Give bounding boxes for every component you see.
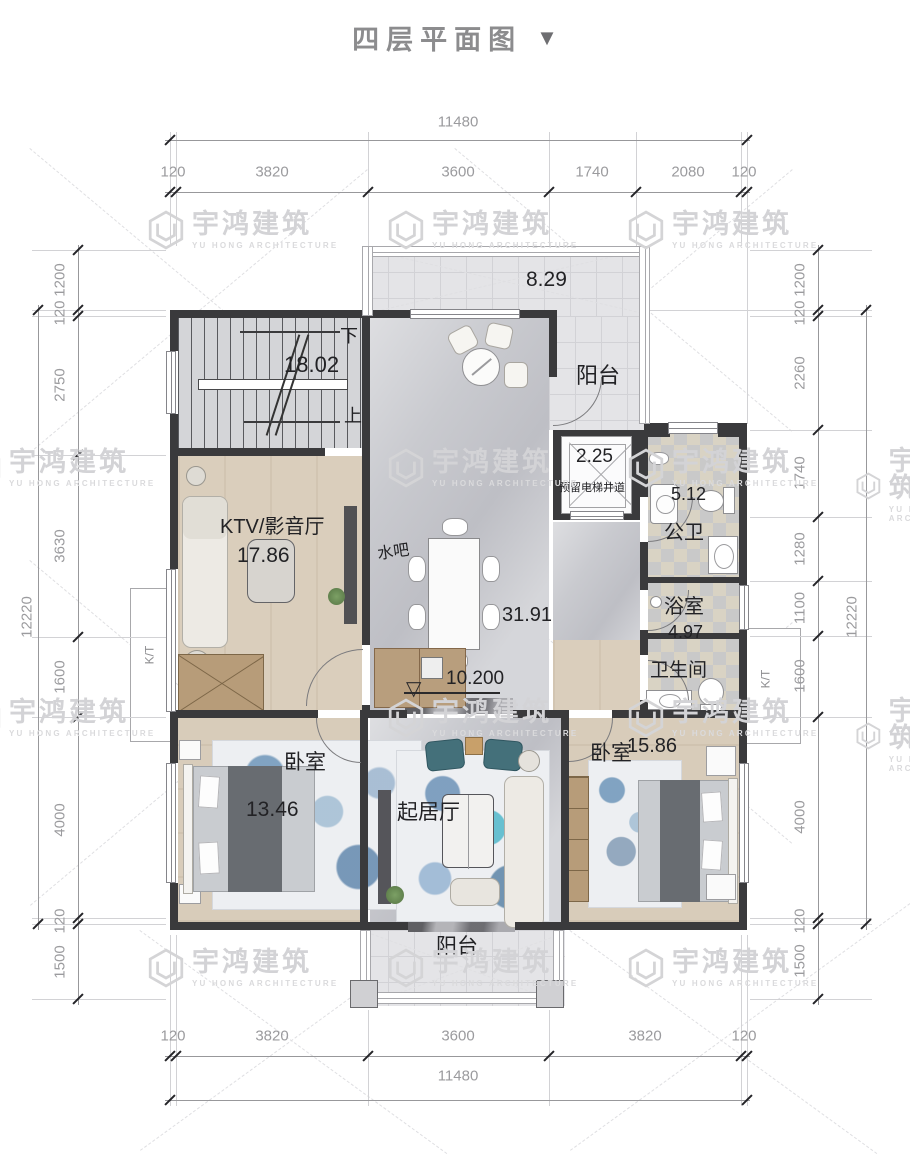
wall (170, 310, 178, 351)
wall (648, 577, 739, 583)
bay-window-left-label: K/T (142, 646, 156, 665)
elevation-value: 10.200 (446, 668, 504, 690)
elevator-door (570, 511, 624, 520)
extension-line (32, 637, 166, 638)
window (166, 569, 176, 712)
elevation-underline (404, 692, 500, 694)
nightstand (706, 746, 736, 776)
dimension-value: 1600 (792, 659, 809, 692)
bed-headboard (183, 764, 193, 894)
window (166, 351, 176, 414)
yuhong-logo-icon (856, 716, 881, 756)
dimension-value: 120 (160, 164, 185, 181)
water-bar-label: 水吧 (375, 536, 410, 564)
toilet-tank (723, 487, 735, 514)
dimension-value: 120 (52, 300, 69, 325)
wall (632, 430, 640, 520)
dimension-line (866, 305, 867, 930)
dimension-value: 1280 (792, 532, 809, 565)
plant (328, 588, 345, 605)
bed-blanket (228, 766, 282, 892)
dining-chair (408, 556, 426, 582)
floor-plan-sheet: 四层平面图 ▼ (0, 0, 910, 1154)
armchair (425, 738, 466, 772)
wall (739, 423, 747, 585)
dimension-line (818, 245, 819, 1005)
basin (649, 452, 669, 465)
extension-line (549, 1010, 550, 1106)
balcony-railing (374, 992, 556, 1004)
dimension-value: 3600 (441, 1028, 474, 1045)
extension-line (32, 999, 166, 1000)
extension-line (750, 517, 872, 518)
wall (640, 542, 648, 590)
extension-line (750, 250, 872, 251)
bath-label: 浴室 (664, 590, 704, 619)
dimension-value: 11480 (438, 1068, 479, 1085)
bedroom-right-label: 卧室 (590, 737, 632, 767)
nightstand (706, 874, 736, 900)
dimension-value: 3820 (628, 1028, 661, 1045)
dimension-value: 1740 (792, 456, 809, 489)
extension-line (32, 250, 166, 251)
wall (170, 922, 408, 930)
side-table (186, 466, 206, 486)
dimension-value: 4000 (792, 800, 809, 833)
dimension-value: 1740 (575, 164, 608, 181)
elevator-label: 预留电梯井道 (559, 479, 625, 495)
dimension-value: 120 (52, 908, 69, 933)
dimension-value: 1500 (792, 944, 809, 977)
stair-arrow-down (240, 331, 340, 333)
yuhong-logo-icon (628, 948, 664, 988)
balcony-railing (362, 246, 373, 316)
window (166, 763, 176, 883)
dimension-value: 2080 (671, 164, 704, 181)
hall-area: 31.91 (502, 604, 552, 627)
balcony-bottom-label: 阳台 (436, 930, 478, 960)
wall (360, 718, 368, 922)
wall (561, 718, 569, 922)
page-title: 四层平面图 (352, 18, 522, 57)
yuhong-logo-icon (628, 210, 664, 250)
wall (553, 430, 640, 436)
wall (640, 630, 648, 655)
wall (612, 710, 747, 718)
dimension-value: 3820 (255, 1028, 288, 1045)
dimension-value: 2260 (792, 356, 809, 389)
bed-pillow (701, 791, 723, 822)
balcony-column (350, 980, 378, 1008)
extension-line (750, 310, 872, 311)
dimension-value: 3630 (52, 529, 69, 562)
ktv-wardrobe (178, 654, 264, 714)
corridor-wood-floor (553, 640, 640, 710)
dining-table (428, 538, 480, 650)
dimension-value: 11480 (438, 114, 479, 131)
bed-pillow (701, 839, 723, 870)
window (668, 422, 718, 434)
yuhong-logo-icon (0, 448, 1, 488)
dimension-value: 120 (792, 908, 809, 933)
bed-pillow (198, 775, 220, 808)
dimension-value: 1500 (52, 945, 69, 978)
stair-down-label: 下 (340, 322, 358, 348)
dining-chair (482, 556, 500, 582)
dimension-value: 120 (731, 164, 756, 181)
dimension-value: 1600 (52, 660, 69, 693)
extension-line (741, 935, 742, 1106)
bedroom-left-label: 卧室 (284, 746, 326, 776)
public-wc-area: 5.12 (671, 484, 706, 505)
extension-line (32, 717, 166, 718)
dimension-value: 3600 (441, 164, 474, 181)
lounge-chair (504, 362, 528, 388)
elevation-triangle-icon: ▽ (406, 676, 421, 701)
yuhong-logo-icon (148, 210, 184, 250)
watermark: 宇鸿建筑 YU HONG ARCHITECTURE (856, 698, 910, 773)
toilet (698, 678, 724, 706)
dimension-value: 12220 (19, 596, 36, 638)
balcony-column (536, 980, 564, 1008)
dimension-value: 1200 (52, 263, 69, 296)
ktv-label: KTV/影音厅 (220, 510, 324, 539)
public-wc-label: 公卫 (664, 516, 704, 545)
armchair (483, 738, 523, 771)
extension-line (750, 581, 872, 582)
bed-blanket (660, 780, 700, 902)
dimension-value: 120 (792, 300, 809, 325)
extension-line (750, 430, 872, 431)
dimension-line (38, 305, 39, 930)
yuhong-logo-icon (148, 948, 184, 988)
wall (513, 710, 569, 718)
balcony-top-label: 阳台 (576, 358, 620, 390)
bay-window-right-label: K/T (758, 670, 772, 689)
wall (375, 310, 410, 318)
round-tea-table (462, 348, 500, 386)
dimension-line (165, 1056, 750, 1057)
lounge-chair (484, 322, 514, 351)
dimension-line (78, 245, 79, 1005)
elevator-area: 2.25 (576, 446, 613, 468)
toilet-label: 卫生间 (650, 655, 707, 682)
stair-area: 18.02 (284, 352, 339, 378)
yuhong-logo-icon (0, 698, 1, 738)
stair-handrail (198, 379, 348, 390)
extension-line (750, 717, 872, 718)
wall (170, 712, 178, 763)
wall (170, 448, 325, 456)
footstool (450, 878, 500, 906)
nightstand (179, 740, 201, 760)
dimension-value: 12220 (844, 596, 861, 638)
balcony-railing (639, 246, 650, 424)
wall (362, 448, 370, 645)
small-table (465, 737, 483, 755)
bedroom-left-area: 13.46 (246, 798, 299, 822)
wall (739, 630, 747, 763)
yuhong-logo-icon (856, 466, 881, 506)
wall (549, 310, 557, 377)
wall (170, 310, 375, 318)
dimension-value: 1200 (792, 263, 809, 296)
stair-up-label: 上 (344, 402, 362, 428)
extension-line (747, 935, 748, 1106)
bed-pillow (198, 841, 220, 874)
vanity (708, 536, 738, 574)
extension-line (368, 1010, 369, 1106)
dimension-value: 120 (731, 1028, 756, 1045)
extension-line (176, 935, 177, 1106)
drawing-title: 四层平面图 ▼ (0, 18, 910, 57)
window (410, 309, 520, 319)
extension-line (650, 310, 750, 311)
living-sofa (504, 776, 544, 928)
guide-line (570, 897, 910, 1151)
extension-line (750, 999, 872, 1000)
stair-arrow-up (244, 421, 340, 423)
dining-chair (482, 604, 500, 630)
triangle-down-icon: ▼ (536, 25, 558, 51)
wall (362, 705, 370, 718)
wall (640, 430, 648, 497)
wall (170, 414, 178, 569)
dimension-value: 120 (160, 1028, 185, 1045)
yuhong-logo-icon (388, 210, 424, 250)
dimension-line (165, 140, 750, 141)
window (739, 763, 749, 883)
balcony-railing (362, 246, 650, 257)
extension-line (32, 455, 166, 456)
bath-area: 4.97 (668, 622, 703, 643)
watermark: 宇鸿建筑 YU HONG ARCHITECTURE (856, 448, 910, 523)
wall (362, 310, 370, 448)
dining-chair (408, 604, 426, 630)
ktv-area: 17.86 (237, 544, 290, 568)
bedroom-right-area: 15.86 (627, 735, 677, 758)
extension-line (750, 924, 872, 925)
window (739, 585, 749, 630)
watermark: 宇鸿建筑 YU HONG ARCHITECTURE (628, 210, 818, 250)
living-label: 起居厅 (397, 796, 460, 826)
dimension-value: 2750 (52, 368, 69, 401)
wall (553, 430, 561, 520)
balcony-top-area: 8.29 (526, 268, 567, 292)
extension-line (747, 246, 748, 424)
extension-line (750, 918, 872, 919)
extension-line (170, 935, 171, 1106)
dimension-line (165, 192, 750, 193)
dimension-line (165, 1100, 750, 1101)
plant (386, 886, 404, 904)
tv-panel (344, 506, 357, 624)
watermark: 宇鸿建筑 YU HONG ARCHITECTURE (628, 948, 818, 988)
dining-chair (442, 518, 468, 536)
extension-line (750, 316, 872, 317)
dimension-value: 4000 (52, 803, 69, 836)
wall (515, 922, 747, 930)
stair-room-floor (178, 318, 362, 448)
wall (170, 710, 318, 718)
dimension-value: 3820 (255, 164, 288, 181)
side-table (518, 750, 540, 772)
dimension-value: 1100 (792, 592, 809, 624)
